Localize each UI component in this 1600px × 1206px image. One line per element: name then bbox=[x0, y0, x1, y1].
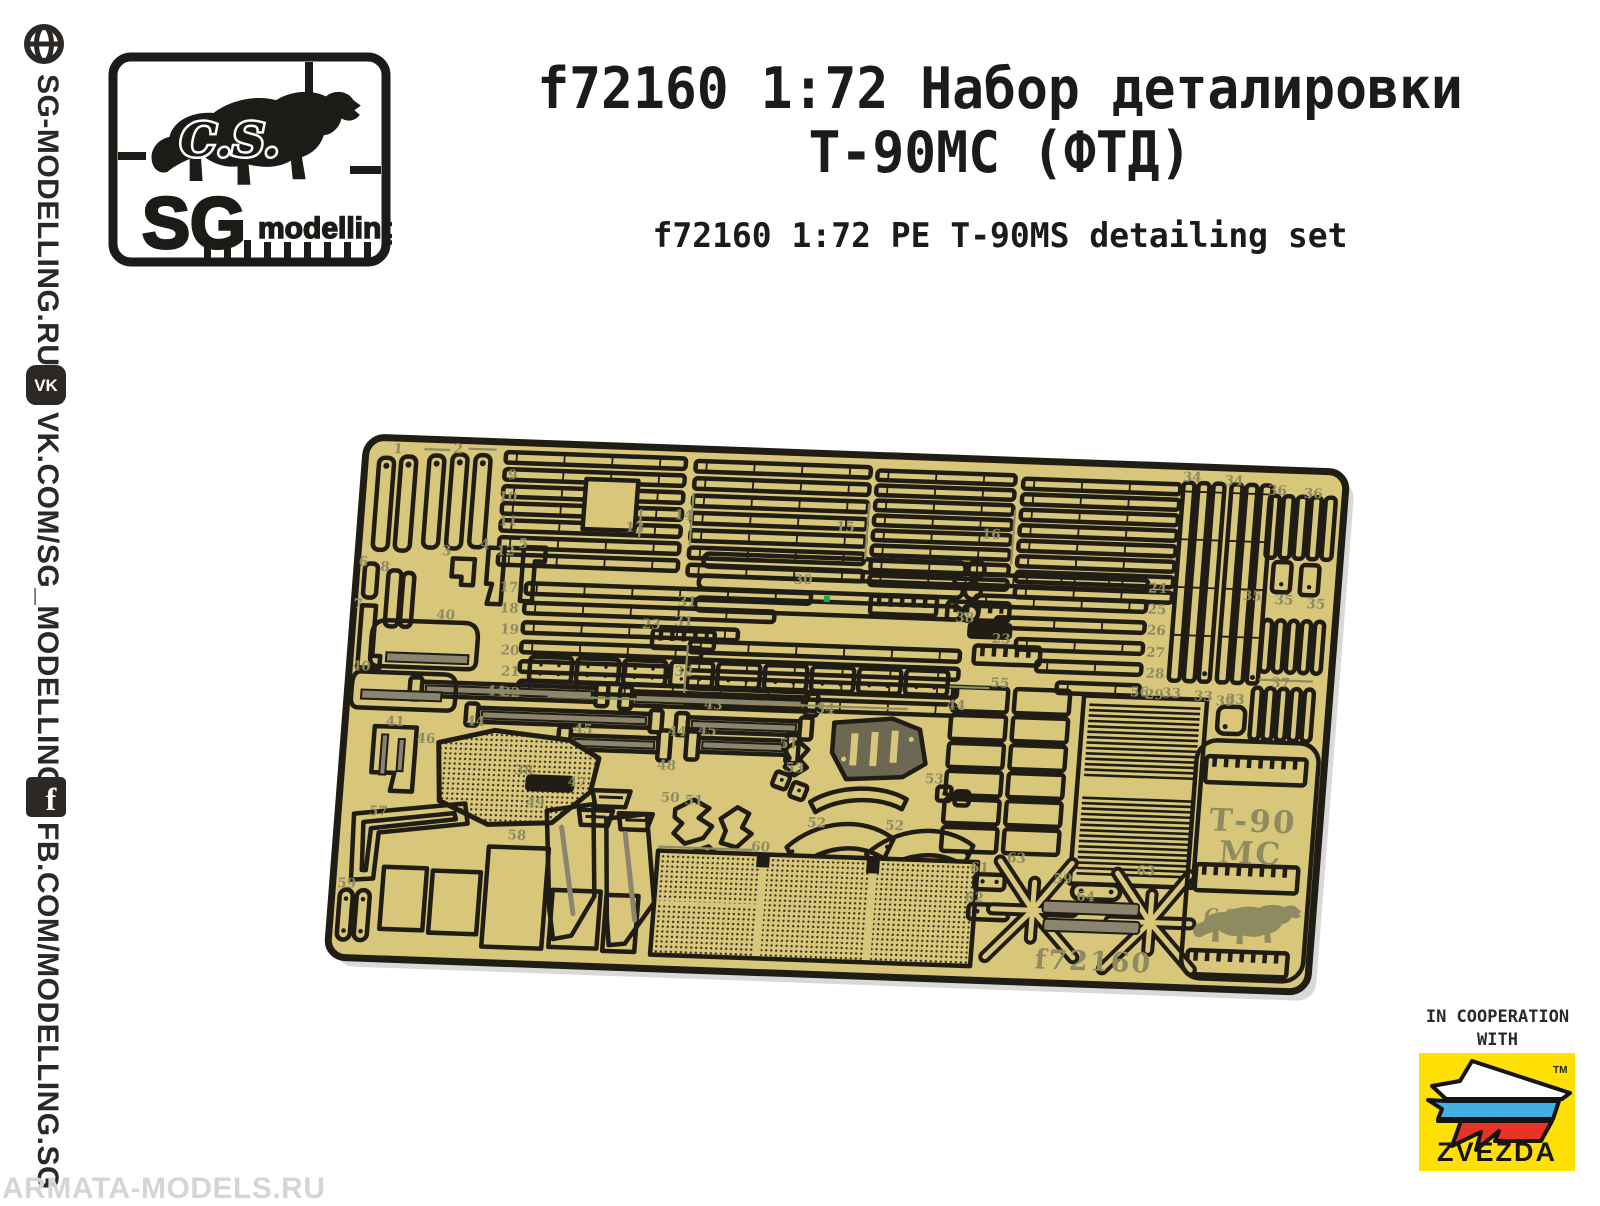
part-number: 61 bbox=[970, 860, 990, 877]
part-number: 64 bbox=[1076, 889, 1096, 906]
part-number: 37 bbox=[1271, 675, 1291, 692]
part-number: 34 bbox=[1224, 473, 1244, 490]
part-number: 17 bbox=[499, 579, 519, 596]
part-number: 38 bbox=[955, 610, 975, 627]
part-number: 25 bbox=[1147, 602, 1167, 619]
part-number: 19 bbox=[500, 621, 520, 638]
logo-sprue-ticks bbox=[204, 240, 371, 261]
part-number: 50 bbox=[660, 790, 680, 807]
part-number: 21 bbox=[500, 663, 520, 680]
svg-text:VK: VK bbox=[34, 376, 58, 395]
part-number: 54 bbox=[815, 701, 835, 718]
trademark-label: TM bbox=[1553, 1065, 1567, 1076]
part-number: 31 bbox=[674, 614, 694, 631]
part-number: 60 bbox=[751, 839, 771, 856]
part-number: 53 bbox=[785, 760, 805, 777]
part-number: 20 bbox=[500, 642, 520, 659]
part-number: 2 bbox=[453, 441, 464, 457]
part-number: 16 bbox=[981, 526, 1001, 543]
part-number: 49 bbox=[525, 795, 545, 812]
part-number: 45 bbox=[697, 723, 717, 740]
part-number: 44 bbox=[486, 683, 506, 700]
etched-bear-initials: C.S. bbox=[1204, 905, 1242, 926]
part-number: 15 bbox=[835, 519, 855, 536]
part-number: 28 bbox=[1145, 666, 1165, 683]
part-number: 8 bbox=[380, 559, 391, 575]
part-number: 51 bbox=[684, 792, 704, 809]
page-title-ru-line2: Т-90МС (ФТД) bbox=[498, 122, 1502, 186]
facebook-icon: f bbox=[25, 776, 67, 818]
part-number: 30 bbox=[793, 572, 813, 589]
zvezda-brand-name: ZVEZDA bbox=[1437, 1137, 1557, 1167]
part-number: 4 bbox=[480, 536, 491, 552]
part-number: 10 bbox=[498, 489, 518, 506]
part-number: 57 bbox=[368, 803, 388, 820]
part-number: 58 bbox=[507, 827, 527, 844]
part-number: 56 bbox=[1130, 684, 1150, 701]
part-number: 62 bbox=[964, 890, 984, 907]
part-number: 48 bbox=[657, 757, 677, 774]
part-number: 52 bbox=[807, 815, 827, 832]
part-number: 55 bbox=[990, 675, 1010, 692]
part-number: 39 bbox=[1215, 693, 1235, 710]
etched-vehicle-name-line2: МС bbox=[1218, 835, 1284, 873]
part-number: 51 bbox=[779, 736, 799, 753]
page-title-ru-line1: f72160 1:72 Набор деталировки bbox=[498, 58, 1502, 122]
part-number: 45 bbox=[573, 721, 593, 738]
part-number: 44 bbox=[667, 724, 687, 741]
logo-name-sub: modelling bbox=[258, 212, 392, 245]
sg-modelling-logo: C.S. SG modelling bbox=[108, 52, 392, 268]
part-number: 3 bbox=[441, 543, 452, 559]
logo-initials: C.S. bbox=[180, 113, 279, 167]
globe-icon bbox=[20, 20, 68, 68]
part-number: 12 bbox=[496, 543, 516, 560]
sidebar-link-fb: FB.COM/MODELLING.SG bbox=[30, 822, 64, 1190]
part-number: 46 bbox=[416, 731, 436, 748]
part-number: 14 bbox=[674, 507, 694, 524]
part-number: 35 bbox=[1242, 588, 1262, 605]
part-number: 18 bbox=[499, 600, 519, 617]
part-number: 47 bbox=[567, 774, 587, 791]
part-number: 32 bbox=[674, 664, 694, 681]
part-number: 5 bbox=[518, 536, 529, 552]
part-number: 34 bbox=[1182, 469, 1202, 486]
part-number: 33 bbox=[1162, 685, 1182, 702]
part-number: 52 bbox=[885, 818, 905, 835]
sidebar-link-vk: VK.COM/SG_MODELLING bbox=[30, 412, 64, 790]
zvezda-logo: TM ZVEZDA bbox=[1419, 1053, 1575, 1171]
part-number: 38 bbox=[514, 762, 534, 779]
part-number: 44 bbox=[946, 698, 966, 715]
part-number: 59 bbox=[337, 875, 357, 892]
part-number: 23 bbox=[641, 616, 661, 633]
part-number: 40 bbox=[351, 658, 371, 675]
part-number: 63 bbox=[1136, 863, 1156, 880]
green-marker bbox=[824, 596, 830, 602]
vk-icon: VK bbox=[25, 364, 67, 406]
sidebar-link-site: SG-MODELLING.RU bbox=[30, 74, 64, 367]
part-number: 31 bbox=[677, 594, 697, 611]
part-number: 40 bbox=[436, 607, 456, 624]
cooperation-note: IN COOPERATION WITH bbox=[1395, 1006, 1600, 1052]
pe-fret-photo: Т-90 МС C.S. f72160 12345687910111213141… bbox=[298, 396, 1422, 1024]
part-number: 24 bbox=[1148, 580, 1168, 597]
part-number: 36 bbox=[1303, 486, 1323, 503]
part-number: 11 bbox=[498, 513, 518, 530]
page-title-en: f72160 1:72 PE T-90MS detailing set bbox=[476, 216, 1524, 256]
part-number: 59 bbox=[1053, 871, 1073, 888]
part-number: 23 bbox=[991, 631, 1011, 648]
part-number: 1 bbox=[393, 441, 404, 457]
part-number: 26 bbox=[1146, 623, 1166, 640]
etched-product-code: f72160 bbox=[1034, 944, 1154, 979]
part-number: 6 bbox=[358, 554, 369, 570]
part-number: 33 bbox=[1193, 688, 1213, 705]
part-number: 53 bbox=[924, 771, 944, 788]
watermark: ARMATA-MODELS.RU bbox=[2, 1172, 326, 1206]
part-number: 44 bbox=[465, 713, 485, 730]
part-number: 63 bbox=[1006, 850, 1026, 867]
part-number: 36 bbox=[1267, 483, 1287, 500]
svg-text:f: f bbox=[46, 781, 57, 817]
part-number: 9 bbox=[507, 467, 518, 483]
part-number: 7 bbox=[353, 596, 364, 612]
part-number: 27 bbox=[1146, 645, 1166, 662]
part-number: 13 bbox=[625, 520, 645, 537]
part-number: 35 bbox=[1274, 592, 1294, 609]
part-number: 41 bbox=[385, 713, 405, 730]
part-number: 43 bbox=[703, 697, 723, 714]
header: f72160 1:72 Набор деталировки Т-90МС (ФТ… bbox=[460, 58, 1540, 256]
part-number: 35 bbox=[1306, 596, 1326, 613]
